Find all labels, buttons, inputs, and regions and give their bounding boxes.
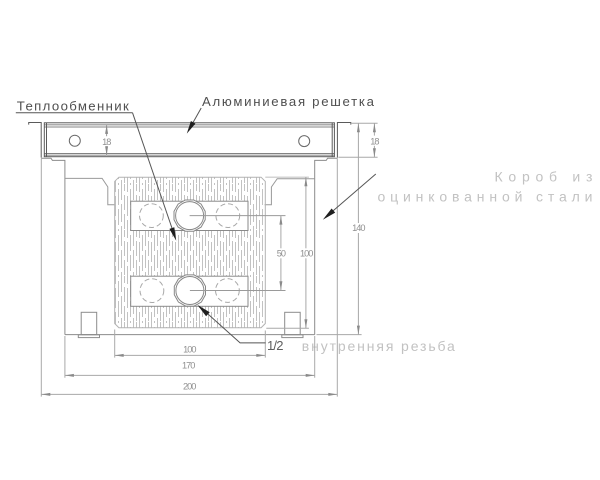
- svg-text:50: 50: [277, 248, 286, 258]
- svg-text:Алюминиевая решетка: Алюминиевая решетка: [202, 94, 376, 109]
- svg-text:оцинкованной стали: оцинкованной стали: [378, 188, 598, 204]
- svg-text:200: 200: [183, 382, 196, 392]
- svg-text:18: 18: [102, 137, 111, 147]
- svg-text:Короб из: Короб из: [495, 169, 599, 185]
- svg-text:внутренняя резьба: внутренняя резьба: [302, 338, 457, 354]
- svg-text:Теплообменник: Теплообменник: [17, 99, 130, 114]
- svg-text:1/2: 1/2: [267, 338, 283, 353]
- svg-text:170: 170: [182, 360, 195, 370]
- svg-text:140: 140: [352, 223, 365, 233]
- svg-text:18: 18: [370, 137, 379, 147]
- svg-text:100: 100: [300, 248, 313, 258]
- svg-text:100: 100: [183, 345, 196, 355]
